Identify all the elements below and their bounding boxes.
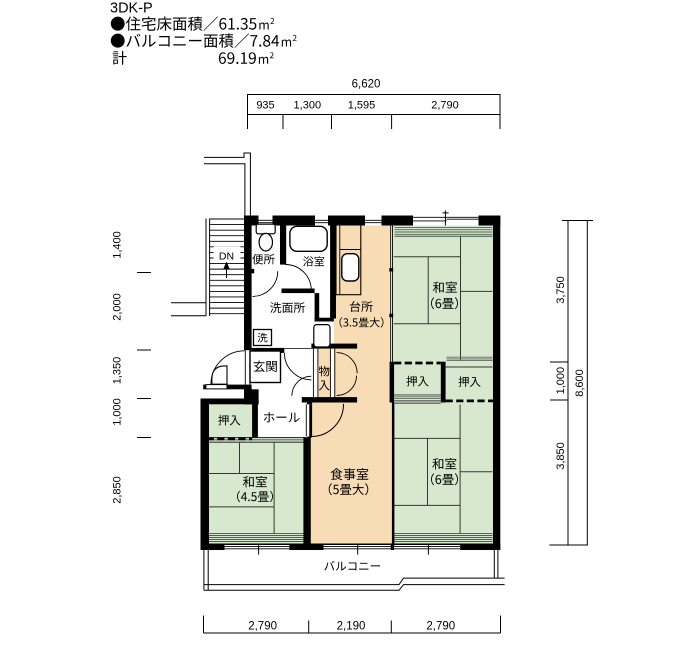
svg-text:2,190: 2,190 bbox=[337, 621, 366, 633]
svg-text:2,790: 2,790 bbox=[431, 100, 459, 112]
svg-text:1,595: 1,595 bbox=[348, 100, 376, 112]
svg-text:6,620: 6,620 bbox=[352, 79, 381, 91]
svg-text:1,400: 1,400 bbox=[112, 231, 124, 259]
svg-text:3DK-P: 3DK-P bbox=[110, 1, 153, 17]
svg-text:1,300: 1,300 bbox=[294, 100, 322, 112]
svg-text:2,000: 2,000 bbox=[112, 293, 124, 321]
svg-text:DN: DN bbox=[219, 251, 234, 263]
svg-text:2,790: 2,790 bbox=[248, 621, 277, 633]
svg-text:1,000: 1,000 bbox=[112, 398, 124, 426]
svg-text:1,350: 1,350 bbox=[112, 357, 124, 385]
svg-text:3,750: 3,750 bbox=[555, 276, 567, 304]
svg-text:3,850: 3,850 bbox=[555, 442, 567, 470]
svg-text:8,600: 8,600 bbox=[574, 369, 586, 397]
svg-text:1,000: 1,000 bbox=[555, 367, 567, 395]
svg-text:2,850: 2,850 bbox=[112, 476, 124, 504]
svg-text:2,790: 2,790 bbox=[426, 621, 455, 633]
svg-text:935: 935 bbox=[256, 100, 274, 112]
